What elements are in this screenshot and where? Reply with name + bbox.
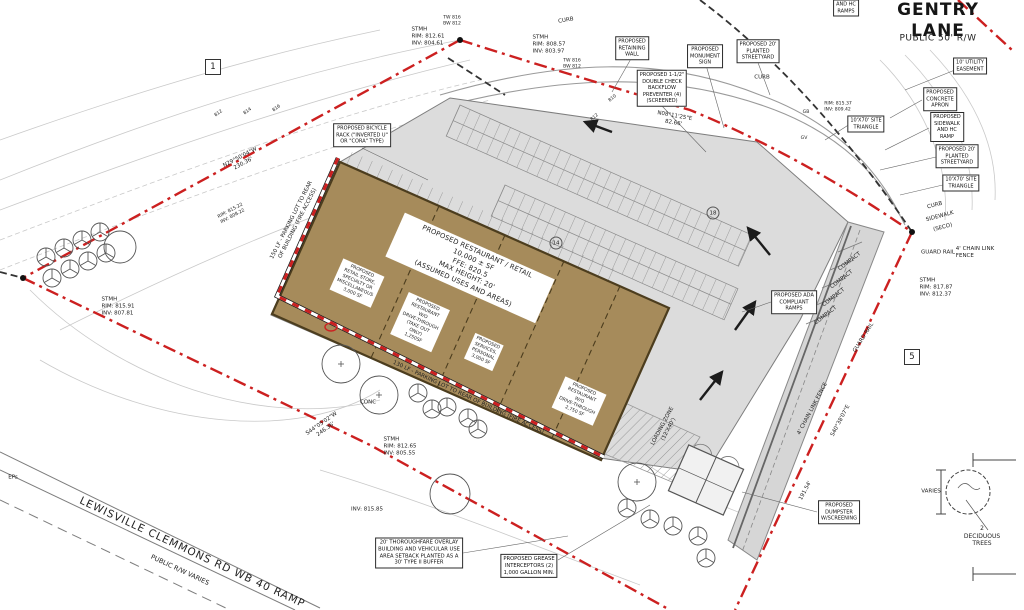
callout-sidewalk-hc-ramp: PROPOSED SIDEWALK AND HC RAMP	[930, 112, 964, 142]
legend-varies: VARIES	[921, 489, 941, 496]
label-curb-entrance: CURB	[754, 75, 769, 82]
callout-monument-sign: PROPOSED MONUMENT SIGN	[687, 44, 723, 68]
label-stmh-817: STMH RIM: 817.87 INV: 812.37	[919, 278, 952, 299]
label-gv: GV	[801, 136, 808, 142]
legend-graphics	[936, 453, 1016, 581]
callout-ada-ramps: PROPOSED ADA COMPLIANT RAMPS	[771, 290, 817, 314]
callout-planted-streetyard-right: PROPOSED 20' PLANTED STREETYARD	[936, 144, 979, 168]
callout-grease-interceptors: PROPOSED GREASE INTERCEPTORS (2) 1,000 G…	[500, 554, 557, 578]
legend-deciduous-trees: 2 DECIDUOUS TREES	[961, 525, 1003, 548]
callout-concrete-apron: PROPOSED CONCRETE APRON	[923, 87, 957, 111]
label-chain-link-right: 4' CHAIN LINK FENCE	[956, 246, 994, 260]
label-stmh-815: STMH RIM: 815.91 INV: 807.81	[101, 297, 134, 318]
keynote-marker-5: 5	[904, 349, 920, 365]
callout-site-triangle-mid: 10'X70' SITE TRIANGLE	[847, 116, 884, 133]
label-stmh-808: STMH RIM: 808.57 INV: 803.97	[532, 35, 565, 56]
callout-hc-ramps-clipped: AND HC RAMPS	[833, 0, 859, 17]
label-guard-rail-right: GUARD RAIL	[921, 250, 955, 257]
label-gb: GB	[803, 110, 810, 116]
callout-dumpster-screening: PROPOSED DUMPSTER W/SCREENING	[818, 500, 860, 524]
callout-planted-streetyard-top: PROPOSED 20' PLANTED STREETYARD	[737, 39, 780, 63]
label-tw-bw-1: TW 816 BW 812	[443, 15, 461, 26]
callout-backflow-preventer: PROPOSED 1-1/2" DOUBLE CHECK BACKFLOW PR…	[637, 70, 687, 107]
stall-count-18: 18	[707, 207, 720, 220]
label-eps: EPs	[8, 475, 18, 482]
callout-utility-easement: 10' UTILITY EASEMENT	[953, 58, 987, 75]
label-conc: CONC	[360, 400, 376, 407]
label-rim-81537: RIM: 815.37 INV: 809.42	[824, 101, 852, 112]
label-stmh-81265: STMH RIM: 812.65 INV: 805.55	[383, 437, 416, 458]
keynote-marker-1: 1	[205, 59, 221, 75]
stall-count-14: 14	[550, 237, 563, 250]
callout-site-triangle-right: 10'X70' SITE TRIANGLE	[942, 175, 979, 192]
callout-thoroughfare-buffer: 20' THOROUGHFARE OVERLAY BUILDING AND VE…	[375, 538, 463, 569]
label-stmh-812: STMH RIM: 812.61 INV: 804.61	[411, 27, 444, 48]
label-inv-815: INV: 815.85	[351, 507, 383, 514]
label-tw-bw-2: TW 816 BW 812	[563, 58, 581, 69]
site-plan-sheet: GENTRY LANE PUBLIC 50' R/W PROPOSED RETA…	[0, 0, 1024, 610]
callout-bicycle-rack: PROPOSED BICYCLE RACK ("INVERTED U" OR "…	[333, 123, 391, 147]
callout-retaining-wall: PROPOSED RETAINING WALL	[615, 36, 649, 60]
street-rw: PUBLIC 50' R/W	[900, 33, 977, 44]
